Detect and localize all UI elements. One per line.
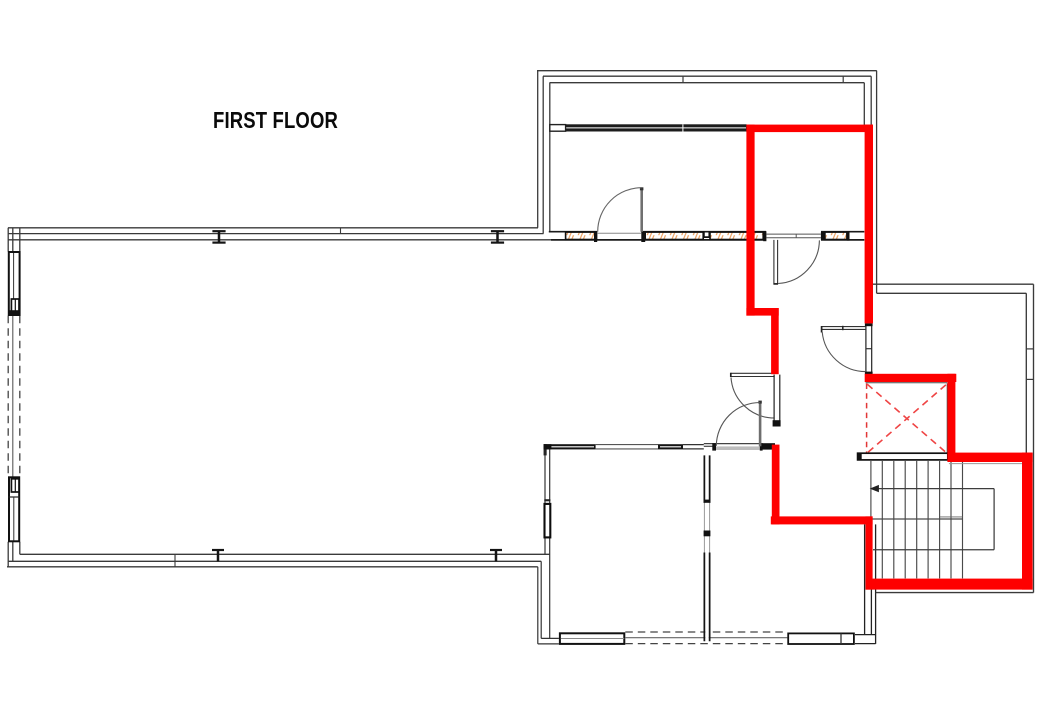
- svg-text:FIRST FLOOR: FIRST FLOOR: [213, 107, 338, 133]
